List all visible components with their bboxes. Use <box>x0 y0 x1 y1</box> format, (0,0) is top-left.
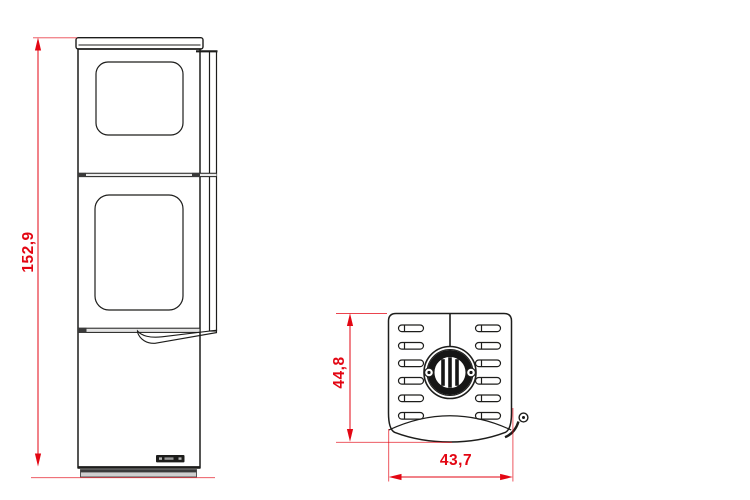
height-dimension-label: 152,9 <box>20 231 37 272</box>
height-dimension: 152,9 <box>20 38 215 478</box>
front-view <box>76 38 218 477</box>
door-division <box>78 173 217 177</box>
vent-slots-left <box>399 325 424 419</box>
vent-slot <box>476 378 501 385</box>
width-arrow-left <box>389 474 402 480</box>
height-arrow-up <box>35 38 41 51</box>
front-side-door-edge <box>210 52 217 331</box>
vent-slot <box>476 413 501 420</box>
vent-slot <box>476 343 501 350</box>
top-plate <box>76 38 203 49</box>
front-curve-edge <box>389 416 511 430</box>
vent-slot <box>399 360 424 367</box>
depth-arrow-up <box>347 313 353 326</box>
vent-slot <box>399 395 424 402</box>
vent-slots-right <box>476 325 501 419</box>
depth-dimension-label: 44,8 <box>331 356 348 388</box>
division-right-cap <box>192 173 200 177</box>
upper-door-window <box>96 62 183 135</box>
main-door-window <box>95 195 183 310</box>
flue-collar <box>424 347 476 399</box>
vent-slot <box>399 325 424 332</box>
vent-slot <box>476 325 501 332</box>
depth-arrow-down <box>347 429 353 442</box>
top-view <box>389 314 528 443</box>
vent-slot <box>476 360 501 367</box>
brand-badge <box>156 455 185 462</box>
flue-screw-left <box>425 368 434 377</box>
hinge-block <box>78 328 87 333</box>
stove-technical-drawing: 152,9 <box>0 0 750 500</box>
width-arrow-right <box>500 474 513 480</box>
flue-grate <box>443 357 457 387</box>
technical-drawing-page: 152,9 <box>0 0 750 500</box>
base-plinth <box>78 467 200 477</box>
top-view-handle <box>505 413 528 437</box>
division-left-cap <box>78 173 86 177</box>
flue-screw-right <box>467 368 476 377</box>
vent-slot <box>399 343 424 350</box>
height-arrow-down <box>35 454 41 467</box>
vent-slot <box>399 378 424 385</box>
width-dimension-label: 43,7 <box>440 452 472 469</box>
vent-slot <box>399 413 424 420</box>
vent-slot <box>476 395 501 402</box>
